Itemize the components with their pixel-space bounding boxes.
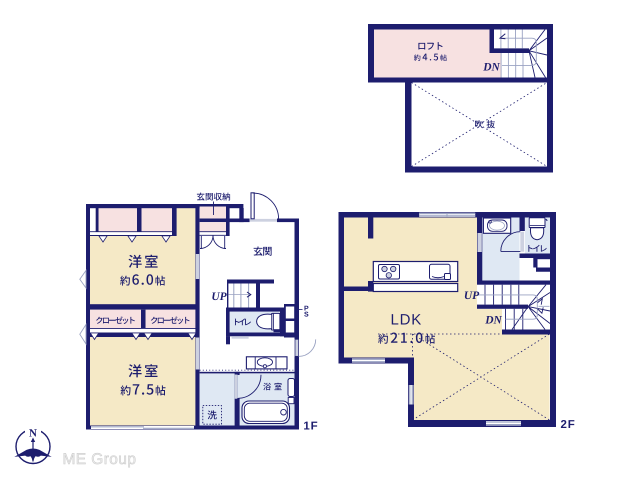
- svg-text:LDK: LDK: [391, 311, 423, 328]
- svg-text:ME Group: ME Group: [63, 451, 137, 468]
- svg-text:1F: 1F: [303, 421, 318, 433]
- svg-text:S: S: [304, 312, 309, 319]
- svg-text:UP: UP: [211, 291, 227, 303]
- svg-text:DN: DN: [482, 61, 500, 73]
- svg-text:2F: 2F: [561, 419, 576, 431]
- svg-text:DN: DN: [484, 315, 502, 327]
- svg-text:UP: UP: [464, 290, 480, 302]
